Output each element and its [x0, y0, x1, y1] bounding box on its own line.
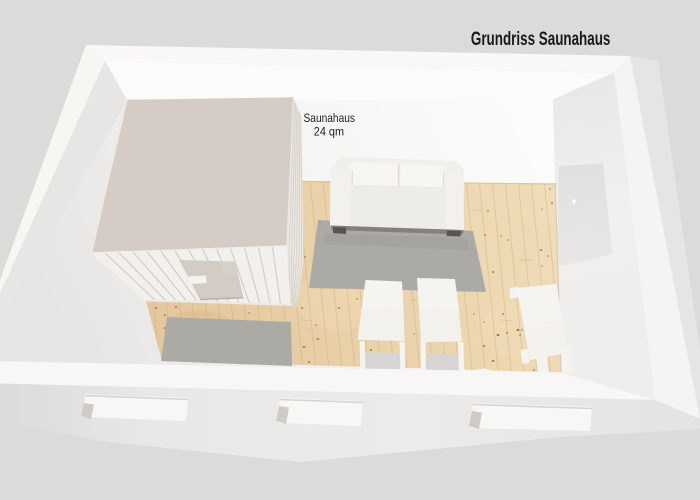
svg-text:Saunahaus: Saunahaus: [304, 111, 356, 125]
svg-text:Grundriss Saunahaus: Grundriss Saunahaus: [471, 28, 611, 50]
svg-text:24 qm: 24 qm: [314, 125, 344, 139]
